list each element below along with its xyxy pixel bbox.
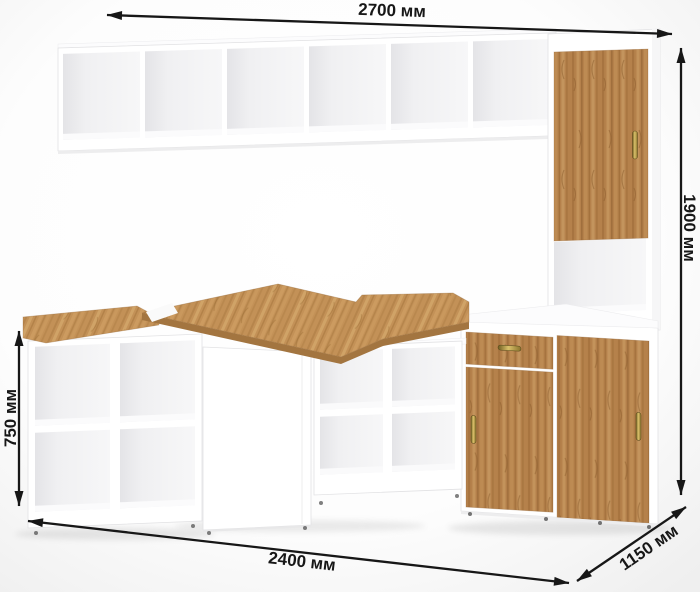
shelf-cubby	[392, 346, 455, 407]
shelf-cubby	[120, 340, 195, 422]
shelf-cubby	[391, 41, 468, 129]
shelf-cubby	[227, 46, 304, 134]
base-cabinet-door-left	[466, 367, 553, 512]
shelf-cubby	[63, 51, 140, 139]
door-handle-left	[471, 415, 476, 443]
dimension-label-top-width: 2700 мм	[342, 0, 443, 21]
shelf-cubby	[392, 411, 455, 472]
base-cabinet-door-right	[557, 335, 649, 523]
open-niche	[554, 238, 646, 314]
shelf-cubby	[35, 344, 110, 426]
furniture-product-image: 2700 мм 1900 мм 750 мм 2400 мм 1150 мм	[0, 0, 700, 592]
desk-pedestal	[203, 347, 311, 535]
dimension-label-desk-height: 750 мм	[2, 368, 20, 468]
left-shelf-unit	[23, 306, 202, 535]
shelf-cubby	[309, 44, 386, 132]
shelf-cubby	[145, 49, 222, 137]
shelf-cubby	[35, 430, 110, 512]
dimension-label-height: 1900 мм	[680, 178, 698, 278]
door-handle-upper	[633, 131, 638, 159]
base-cabinet	[461, 304, 658, 529]
tall-cabinet-column	[548, 29, 660, 330]
shelf-cubby	[320, 414, 383, 475]
drawer-handle	[498, 345, 521, 351]
furniture-illustration	[0, 0, 700, 592]
wall-shelf-unit	[58, 29, 556, 154]
shelf-cubby	[473, 39, 550, 127]
shelf-cubby	[120, 426, 195, 508]
door-handle-right	[636, 412, 641, 440]
